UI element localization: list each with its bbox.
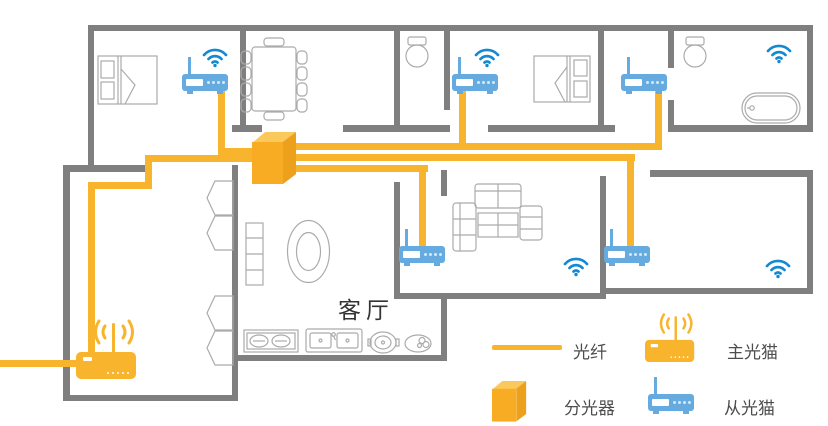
wall xyxy=(394,125,450,132)
indicator-dots xyxy=(673,401,691,404)
wifi-icon xyxy=(765,258,791,279)
main-modem-body xyxy=(645,340,694,362)
wall xyxy=(88,25,813,31)
wall xyxy=(63,165,147,172)
wall xyxy=(232,125,262,132)
modem-body xyxy=(648,394,694,411)
foot xyxy=(609,263,615,266)
wall xyxy=(343,125,400,132)
bed xyxy=(97,55,158,105)
indicator-dots xyxy=(107,372,130,375)
antenna xyxy=(458,57,461,75)
wall xyxy=(650,170,813,177)
modem-body xyxy=(452,74,498,91)
wall xyxy=(668,31,674,68)
kitchen-sink xyxy=(305,328,363,353)
foot xyxy=(683,411,689,414)
antenna xyxy=(188,57,191,75)
legend-splitter-icon xyxy=(492,381,526,422)
toilet xyxy=(404,36,430,68)
wall xyxy=(441,170,447,196)
legend-label: 光纤 xyxy=(573,338,607,363)
toilet xyxy=(682,36,708,68)
splitter-front-face xyxy=(492,389,516,422)
fiber-cable xyxy=(459,86,466,148)
wall xyxy=(488,125,615,132)
foot xyxy=(626,91,632,94)
room-label-living: 客厅 xyxy=(338,291,394,325)
fiber-cable xyxy=(88,182,152,189)
legend-main-modem-icon xyxy=(645,312,696,363)
modem-body xyxy=(604,246,650,263)
indicator-dots xyxy=(207,81,225,84)
bathtub xyxy=(741,92,801,124)
wall xyxy=(232,355,447,361)
modem-screen xyxy=(456,79,473,86)
modem-slot xyxy=(651,344,658,347)
splitter-front-face xyxy=(252,142,283,184)
foot xyxy=(404,263,410,266)
modem-body xyxy=(399,246,445,263)
main-modem-antenna xyxy=(112,323,115,354)
wall xyxy=(88,25,94,172)
modem-screen xyxy=(652,399,669,406)
antenna xyxy=(405,229,408,247)
wardrobe xyxy=(206,180,234,216)
main-modem xyxy=(76,318,138,380)
foot xyxy=(457,91,463,94)
fiber-cable xyxy=(288,143,662,150)
modem-slot xyxy=(83,357,92,361)
wifi-icon xyxy=(474,47,500,68)
legend-label: 分光器 xyxy=(564,394,615,419)
wall xyxy=(668,125,813,132)
washing-machine xyxy=(403,334,434,353)
foot xyxy=(487,91,493,94)
fiber-cable xyxy=(655,86,662,150)
legend-slave-modem-icon xyxy=(648,377,694,415)
wall xyxy=(63,395,238,401)
modem-screen xyxy=(186,79,203,86)
fiber-cable xyxy=(145,155,259,162)
floor-plan-diagram: 客厅 光纤 分光器 主光猫 从光猫 xyxy=(0,0,828,426)
wall xyxy=(444,31,450,110)
foot xyxy=(656,91,662,94)
slave-modem xyxy=(621,57,667,95)
wall xyxy=(807,25,813,132)
dining-table xyxy=(240,37,308,121)
wardrobe xyxy=(206,295,234,331)
stove xyxy=(243,329,299,353)
armchair xyxy=(452,202,477,252)
wifi-icon xyxy=(202,47,228,68)
bed xyxy=(533,55,591,103)
rug xyxy=(286,219,331,284)
wall xyxy=(394,31,400,128)
modem-screen xyxy=(403,251,420,258)
slave-modem xyxy=(399,229,445,267)
modem-screen xyxy=(608,251,625,258)
antenna xyxy=(654,377,657,395)
optical-splitter xyxy=(252,132,296,184)
wardrobe xyxy=(206,330,234,366)
wifi-icon xyxy=(563,256,589,277)
indicator-dots xyxy=(646,81,664,84)
foot xyxy=(434,263,440,266)
modem-body xyxy=(621,74,667,91)
legend-label: 从光猫 xyxy=(724,394,775,419)
main-modem-body xyxy=(76,352,136,379)
indicator-dots xyxy=(670,356,688,358)
fiber-cable xyxy=(288,154,635,161)
modem-screen xyxy=(625,79,642,86)
legend-label: 主光猫 xyxy=(727,338,778,363)
modem-body xyxy=(182,74,228,91)
wifi-icon xyxy=(766,43,792,64)
indicator-dots xyxy=(424,253,442,256)
fiber-cable xyxy=(288,165,428,172)
legend-fiber-line-icon xyxy=(492,345,562,350)
foot xyxy=(217,91,223,94)
wall xyxy=(598,31,604,132)
indicator-dots xyxy=(629,253,647,256)
coffee-table xyxy=(477,212,519,238)
wall xyxy=(441,293,447,361)
foot xyxy=(639,263,645,266)
indicator-dots xyxy=(477,81,495,84)
wall xyxy=(807,170,813,294)
washing-machine xyxy=(367,331,400,354)
fiber-cable-street xyxy=(0,360,78,367)
armchair xyxy=(519,205,543,241)
wall xyxy=(394,293,606,299)
antenna xyxy=(627,57,630,75)
wardrobe xyxy=(206,215,234,251)
wall xyxy=(600,288,813,294)
antenna xyxy=(610,229,613,247)
slave-modem xyxy=(604,229,650,267)
foot xyxy=(653,411,659,414)
foot xyxy=(187,91,193,94)
main-modem-antenna xyxy=(675,316,677,341)
sofa xyxy=(474,183,522,209)
tv-bench xyxy=(245,222,264,286)
